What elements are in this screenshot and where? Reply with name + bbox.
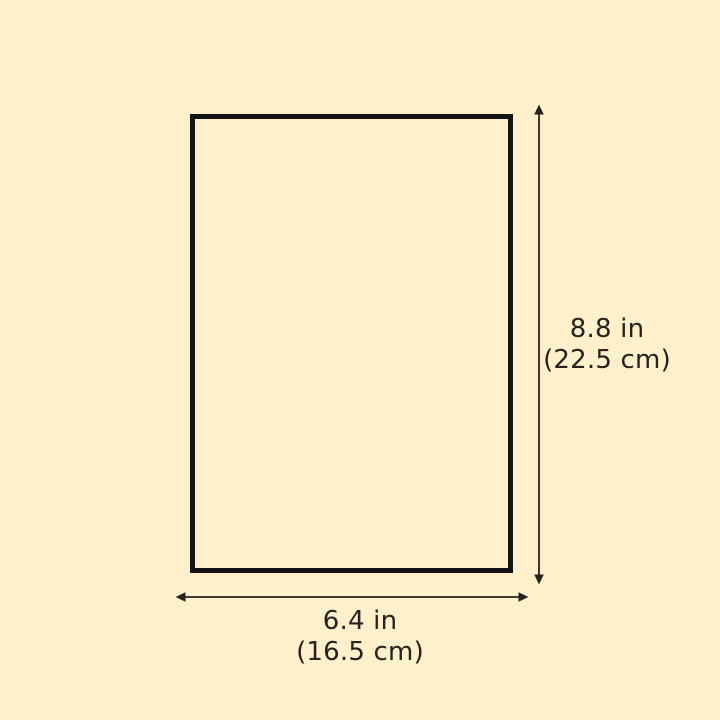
width-value-cm: (16.5 cm) — [270, 637, 450, 668]
dimension-diagram: 8.8 in (22.5 cm) 6.4 in (16.5 cm) — [0, 0, 720, 720]
width-dimension-arrow — [176, 592, 529, 602]
width-value-inches: 6.4 in — [270, 606, 450, 637]
height-value-cm: (22.5 cm) — [527, 345, 687, 376]
height-value-inches: 8.8 in — [527, 314, 687, 345]
width-dimension-label: 6.4 in (16.5 cm) — [270, 606, 450, 668]
product-outline-rectangle — [190, 114, 513, 573]
height-dimension-label: 8.8 in (22.5 cm) — [527, 314, 687, 376]
